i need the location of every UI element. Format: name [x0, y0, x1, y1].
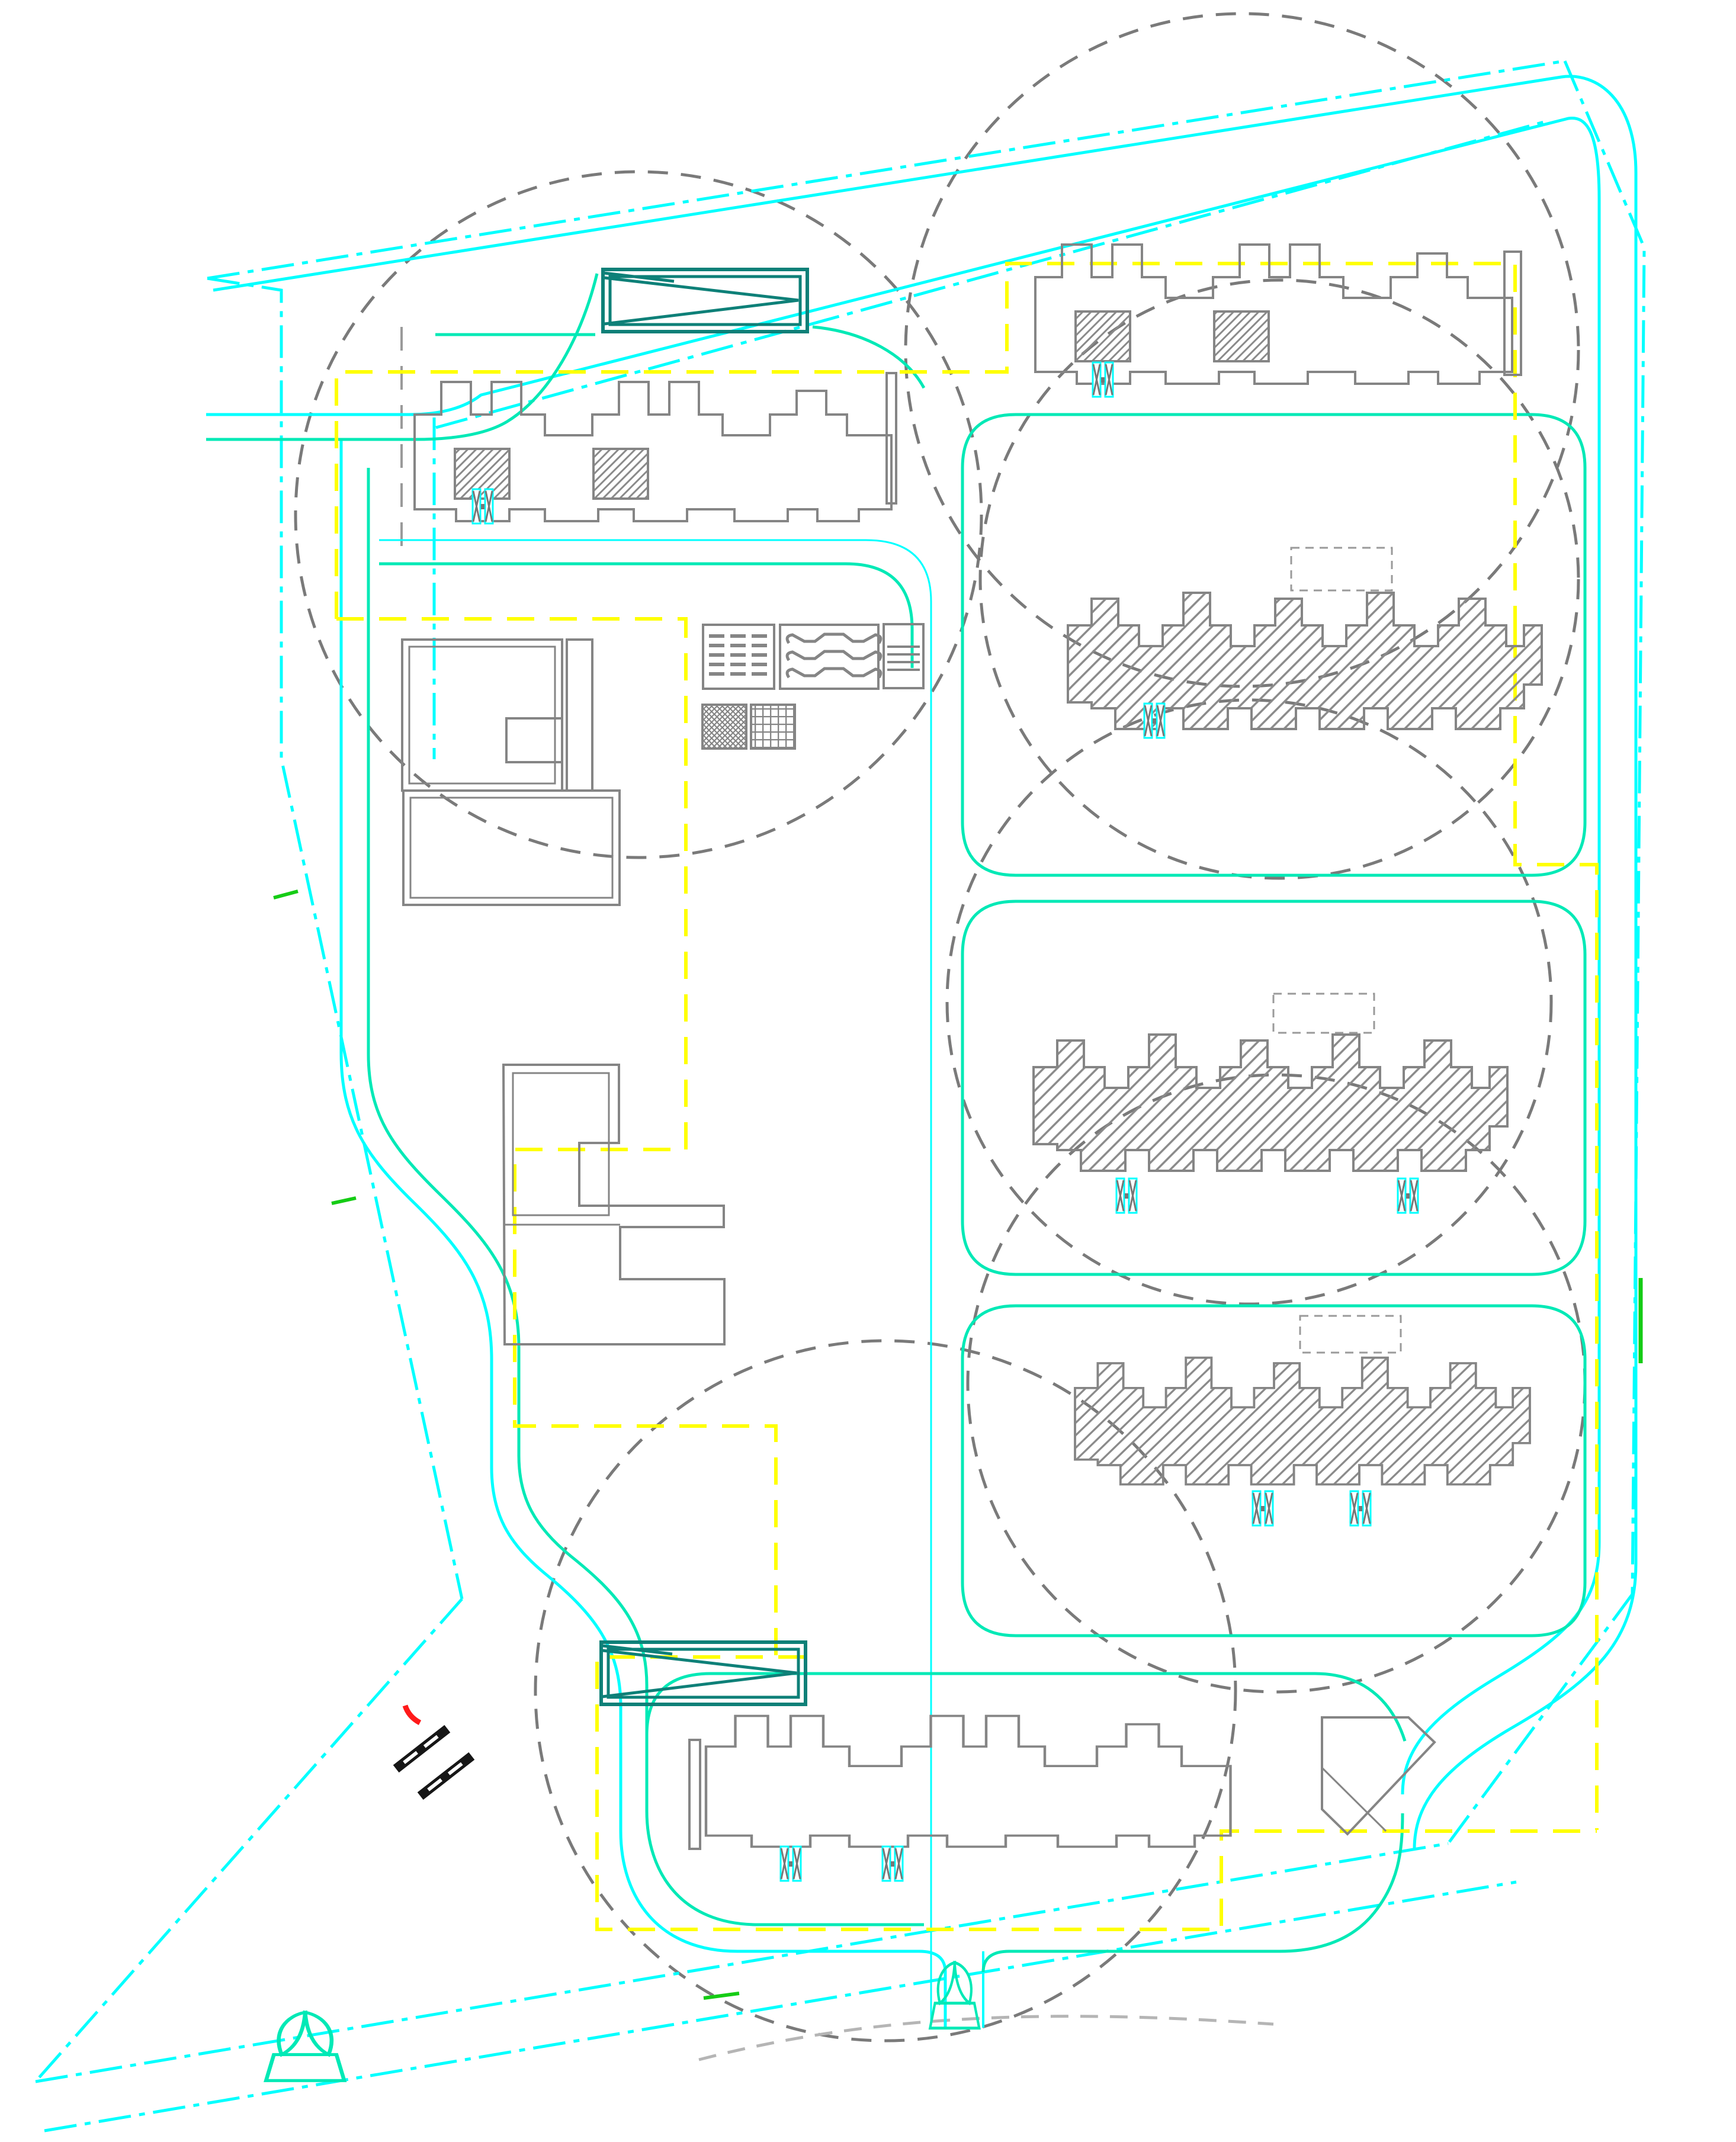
- unit-entrance: [1093, 362, 1113, 397]
- kiosk-pentagon: [1322, 1717, 1435, 1834]
- roof-dashed-detail-3: [1300, 1316, 1401, 1353]
- furniture-bench-1: [787, 634, 881, 643]
- building-2-core-a: [1076, 311, 1130, 361]
- drawing-root: [36, 14, 1644, 2131]
- cad-viewport[interactable]: [0, 0, 1736, 2142]
- building-1-core-b: [593, 449, 648, 499]
- road-top-inner: [206, 118, 1599, 1542]
- community-building-upper: [402, 640, 562, 791]
- layer-roads-cyan: [206, 76, 1636, 2028]
- barrier-mark-1: [393, 1725, 451, 1772]
- unit-entrance: [1116, 1178, 1137, 1213]
- boundary-bottom-street-outer: [44, 1882, 1516, 2131]
- barrier-mark-2: [418, 1752, 475, 1800]
- road-top-outer: [213, 76, 1636, 1563]
- setback-north: [336, 264, 1515, 631]
- site-plan-svg[interactable]: [0, 0, 1736, 2142]
- building-6-tail: [689, 1740, 700, 1849]
- layer-coverage-circles: [296, 14, 1585, 2041]
- loop-bottom-right: [983, 1813, 1403, 1972]
- building-3-row2-hatched: [1068, 593, 1542, 729]
- gate-planting-southwest: [266, 2012, 344, 2080]
- parking-ramp-north: [603, 269, 807, 332]
- furniture-block-parking-dashes: [709, 636, 767, 674]
- road-right-curve-inner: [1403, 1542, 1599, 1794]
- survey-tick-green-2: [332, 1198, 356, 1203]
- roof-dashed-detail-1: [1291, 548, 1392, 590]
- paving-basketweave: [702, 705, 746, 749]
- building-6-south: [706, 1716, 1231, 1847]
- boundary-bottom-right: [1448, 1594, 1632, 1844]
- furniture-bench-3: [787, 669, 881, 677]
- layer-buildings: [402, 245, 1542, 1849]
- unit-entrance: [1398, 1178, 1418, 1213]
- survey-tick-green-1: [274, 891, 298, 898]
- community-building-notch: [506, 718, 562, 762]
- red-tick: [405, 1706, 420, 1723]
- faint-curb-line: [699, 2016, 1273, 2060]
- community-building-strip: [567, 640, 592, 791]
- road-central-spine: [379, 540, 931, 2025]
- coverage-circle-4: [947, 700, 1551, 1304]
- boundary-bottom-street-inner: [36, 1844, 1448, 2082]
- building-5-row4-hatched: [1075, 1358, 1530, 1485]
- community-building-lower-inner: [410, 798, 612, 898]
- unit-entrance: [883, 1846, 903, 1881]
- building-4-row3-hatched: [1034, 1035, 1507, 1171]
- unit-entrance: [1253, 1491, 1273, 1526]
- layer-site-furniture: [702, 624, 923, 749]
- unit-entrance: [781, 1846, 801, 1881]
- furniture-rack-lines: [887, 647, 920, 670]
- unit-entrance: [1350, 1491, 1371, 1526]
- boundary-hypotenuse: [36, 1599, 462, 2082]
- layer-neighbor-lines: [402, 327, 1273, 2060]
- furniture-block-racks: [884, 624, 923, 688]
- building-1-core-a: [455, 449, 509, 499]
- furniture-bench-2: [787, 651, 881, 660]
- coverage-circle-1: [296, 172, 981, 858]
- boundary-right: [1565, 61, 1644, 1594]
- road-right-curve-outer: [1414, 1563, 1636, 1849]
- building-2-core-b: [1214, 311, 1269, 361]
- stepped-building-outline: [503, 1065, 724, 1344]
- kiosk-pentagon-diagonal: [1322, 1768, 1386, 1831]
- loop-bottom-top-edge: [647, 1674, 1405, 1741]
- community-building-lower: [403, 791, 620, 905]
- paving-grid: [751, 705, 795, 749]
- roof-dashed-detail-2: [1273, 994, 1374, 1033]
